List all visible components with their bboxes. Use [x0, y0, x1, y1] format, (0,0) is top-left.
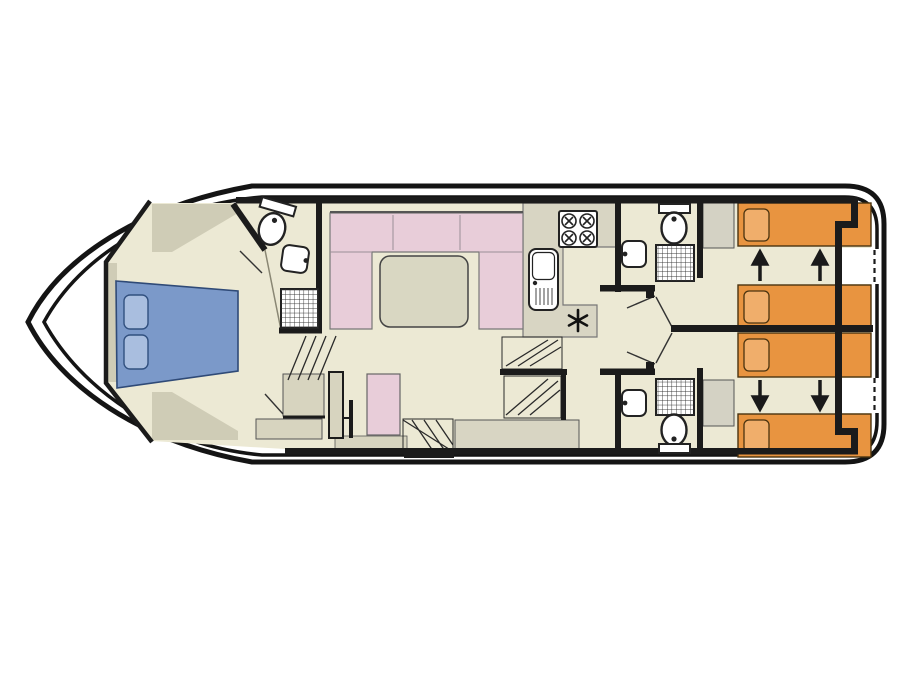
stern-hook-bottom-v: [851, 431, 858, 453]
cabin-wall-top: [697, 200, 703, 278]
aft-bed-2-pillow: [744, 291, 769, 323]
stern-hook-top-v: [851, 203, 858, 225]
boat-floorplan-diagram: [0, 0, 901, 676]
cabin-wall-bottom: [697, 368, 703, 451]
shower-grid: [281, 289, 318, 328]
aft-top-washbasin-icon: [622, 241, 646, 267]
hob-icon: [559, 211, 597, 247]
saloon-table: [380, 256, 468, 327]
toilet-tank: [659, 444, 690, 453]
aft-bottom-washbasin-icon: [622, 390, 646, 416]
helm-seat: [367, 374, 400, 435]
basin-tap: [623, 252, 628, 257]
stern-partition-bar: [835, 224, 842, 432]
aft-bed-1-pillow: [744, 209, 769, 241]
helm-console-cabinet: [283, 374, 324, 416]
mid-stairs-wall-v: [561, 374, 566, 420]
fore-washbasin-icon: [280, 244, 310, 273]
sink-tap: [533, 281, 537, 285]
basin-tap: [623, 401, 628, 406]
helm-wall: [329, 372, 343, 438]
aft-top-shower-icon: [656, 245, 694, 281]
bottom-inner-wall: [285, 448, 858, 455]
entry-threshold: [404, 449, 454, 458]
stern-opening-pocket-bottom: [842, 378, 871, 413]
aft-bathroom-top-jamb: [646, 285, 654, 298]
mid-stairs-wall-h: [500, 369, 567, 375]
bow-step-cabinet: [256, 419, 322, 439]
aft-bathroom-bottom-jamb: [646, 362, 654, 375]
floorplan-canvas: [0, 0, 901, 676]
wardrobe-top-cabin: [703, 203, 734, 248]
helm-bottom-strip: [335, 436, 407, 449]
stern-opening-pocket-top: [842, 248, 871, 284]
wardrobe-bottom-cabin: [703, 380, 734, 426]
toilet-dot: [671, 436, 676, 441]
helm-wall-post: [349, 400, 353, 438]
bow-bed-pillow-1: [124, 295, 148, 329]
top-inner-wall: [236, 197, 858, 204]
aft-bed-4-pillow: [744, 420, 769, 452]
shower-grid: [656, 379, 694, 415]
cabin-divider-wall: [671, 325, 873, 332]
shower-grid: [656, 245, 694, 281]
fore-shower-icon: [281, 289, 318, 328]
aft-bed-3-pillow: [744, 339, 769, 371]
galley-right-wall: [615, 200, 621, 292]
aft-bottom-shower-icon: [656, 379, 694, 415]
bow-bed-pillow-2: [124, 335, 148, 369]
toilet-dot: [671, 216, 676, 221]
aft-bathroom-bottom-left-wall: [615, 369, 621, 451]
side-platform: [455, 420, 579, 449]
galley-sink-icon: [529, 249, 558, 310]
